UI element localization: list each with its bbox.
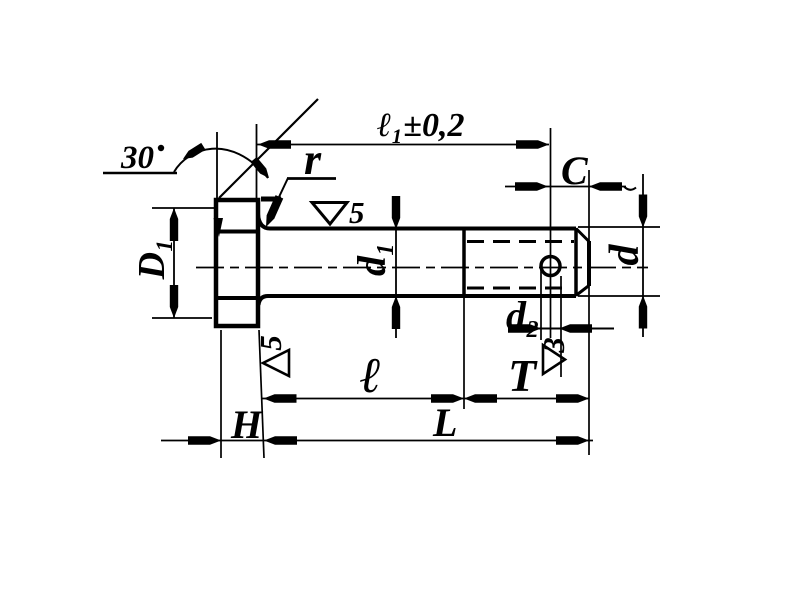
svg-text:r: r	[304, 135, 322, 184]
svg-text:5: 5	[349, 195, 365, 230]
svg-text:L: L	[432, 400, 457, 445]
svg-text:d: d	[602, 244, 648, 266]
svg-text:5: 5	[253, 335, 288, 351]
svg-text:ℓ: ℓ	[360, 347, 381, 403]
svg-text:d₁: d₁	[349, 242, 394, 276]
svg-text:T: T	[508, 350, 538, 401]
svg-text:3: 3	[536, 337, 571, 354]
svg-text:ℓ₁±0,2: ℓ₁±0,2	[377, 107, 465, 144]
svg-text:H: H	[230, 402, 264, 447]
svg-text:D₁: D₁	[131, 239, 173, 281]
svg-text:30: 30	[120, 140, 154, 176]
